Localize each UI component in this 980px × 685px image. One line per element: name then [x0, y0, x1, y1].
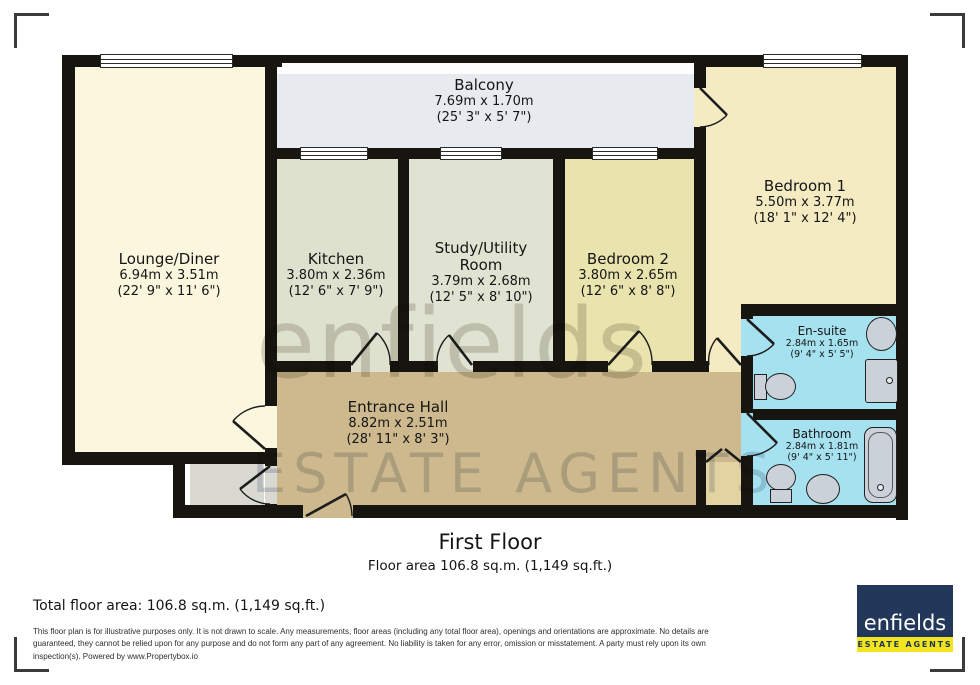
corner-mark-top-left	[14, 13, 49, 48]
disclaimer-line: guaranteed, they cannot be relied upon f…	[33, 638, 709, 650]
bathtub-drain-icon	[877, 484, 884, 491]
wall	[553, 148, 565, 361]
window	[100, 54, 233, 68]
total-floor-area: Total floor area: 106.8 sq.m. (1,149 sq.…	[33, 598, 325, 614]
wall	[62, 452, 185, 465]
floor-area-caption: Floor area 106.8 sq.m. (1,149 sq.ft.)	[0, 558, 980, 574]
store-cupboard-floor	[190, 464, 264, 505]
floorplan-page: enfields ESTATE AGENTS Balcony 7.69m x 1…	[0, 0, 980, 685]
floor-title: First Floor	[0, 530, 980, 554]
disclaimer-line: inspection(s). Powered by www.Propertybo…	[33, 651, 709, 663]
door-opening-balcony	[694, 88, 706, 127]
door-opening-kitchen	[351, 361, 390, 372]
wall	[741, 409, 908, 420]
wall	[277, 361, 741, 372]
window	[440, 147, 502, 160]
room-label-bedroom2: Bedroom 2 3.80m x 2.65m (12' 6" x 8' 8")	[578, 251, 677, 299]
disclaimer-text: This floor plan is for illustrative purp…	[33, 626, 709, 663]
door-opening-study	[438, 361, 473, 372]
room-label-balcony: Balcony 7.69m x 1.70m (25' 3" x 5' 7")	[434, 77, 533, 125]
room-label-kitchen: Kitchen 3.80m x 2.36m (12' 6" x 7' 9")	[286, 251, 385, 299]
wall	[265, 55, 277, 406]
hall-cupboard-floor	[706, 462, 741, 505]
toilet-icon	[766, 464, 796, 491]
wall	[398, 148, 409, 361]
wall	[173, 505, 908, 518]
window	[300, 147, 368, 160]
shower-drain-icon	[886, 377, 893, 384]
door-opening-bathroom	[741, 413, 753, 456]
door-opening-store	[265, 466, 277, 504]
door-opening-bedroom1	[709, 361, 741, 372]
basin-icon	[806, 474, 840, 504]
balcony-railing	[277, 62, 694, 74]
room-label-bathroom: Bathroom 2.84m x 1.81m (9' 4" x 5' 11")	[786, 428, 858, 463]
room-label-ensuite: En-suite 2.84m x 1.65m (9' 4" x 5' 5")	[786, 325, 858, 360]
wall	[896, 55, 908, 520]
enfields-logo: enfields ESTATE AGENTS	[857, 585, 953, 652]
toilet-cistern-icon	[770, 489, 792, 503]
door-opening-ensuite	[741, 319, 753, 356]
wall	[741, 304, 908, 316]
disclaimer-line: This floor plan is for illustrative purp…	[33, 626, 709, 638]
logo-tagline: ESTATE AGENTS	[857, 637, 953, 652]
wall	[696, 450, 706, 505]
shower-icon	[865, 359, 898, 403]
door-opening-front	[303, 505, 353, 518]
corner-mark-top-right	[930, 13, 965, 48]
room-label-hall: Entrance Hall 8.82m x 2.51m (28' 11" x 8…	[346, 399, 449, 447]
toilet-icon	[765, 373, 796, 400]
room-label-study: Study/Utility Room 3.79m x 2.68m (12' 5"…	[420, 240, 542, 305]
room-label-bedroom1: Bedroom 1 5.50m x 3.77m (18' 1" x 12' 4"…	[753, 178, 856, 226]
logo-brand-text: enfields	[857, 611, 953, 637]
window	[592, 147, 658, 160]
door-opening-lounge	[265, 406, 277, 448]
door-opening-bedroom2	[608, 361, 652, 372]
wall	[277, 55, 694, 63]
basin-icon	[866, 317, 897, 351]
room-label-lounge: Lounge/Diner 6.94m x 3.51m (22' 9" x 11'…	[117, 251, 220, 299]
room-bedroom1-nook-floor	[706, 304, 741, 361]
window	[763, 54, 862, 68]
wall	[185, 452, 265, 464]
wall	[62, 55, 75, 465]
